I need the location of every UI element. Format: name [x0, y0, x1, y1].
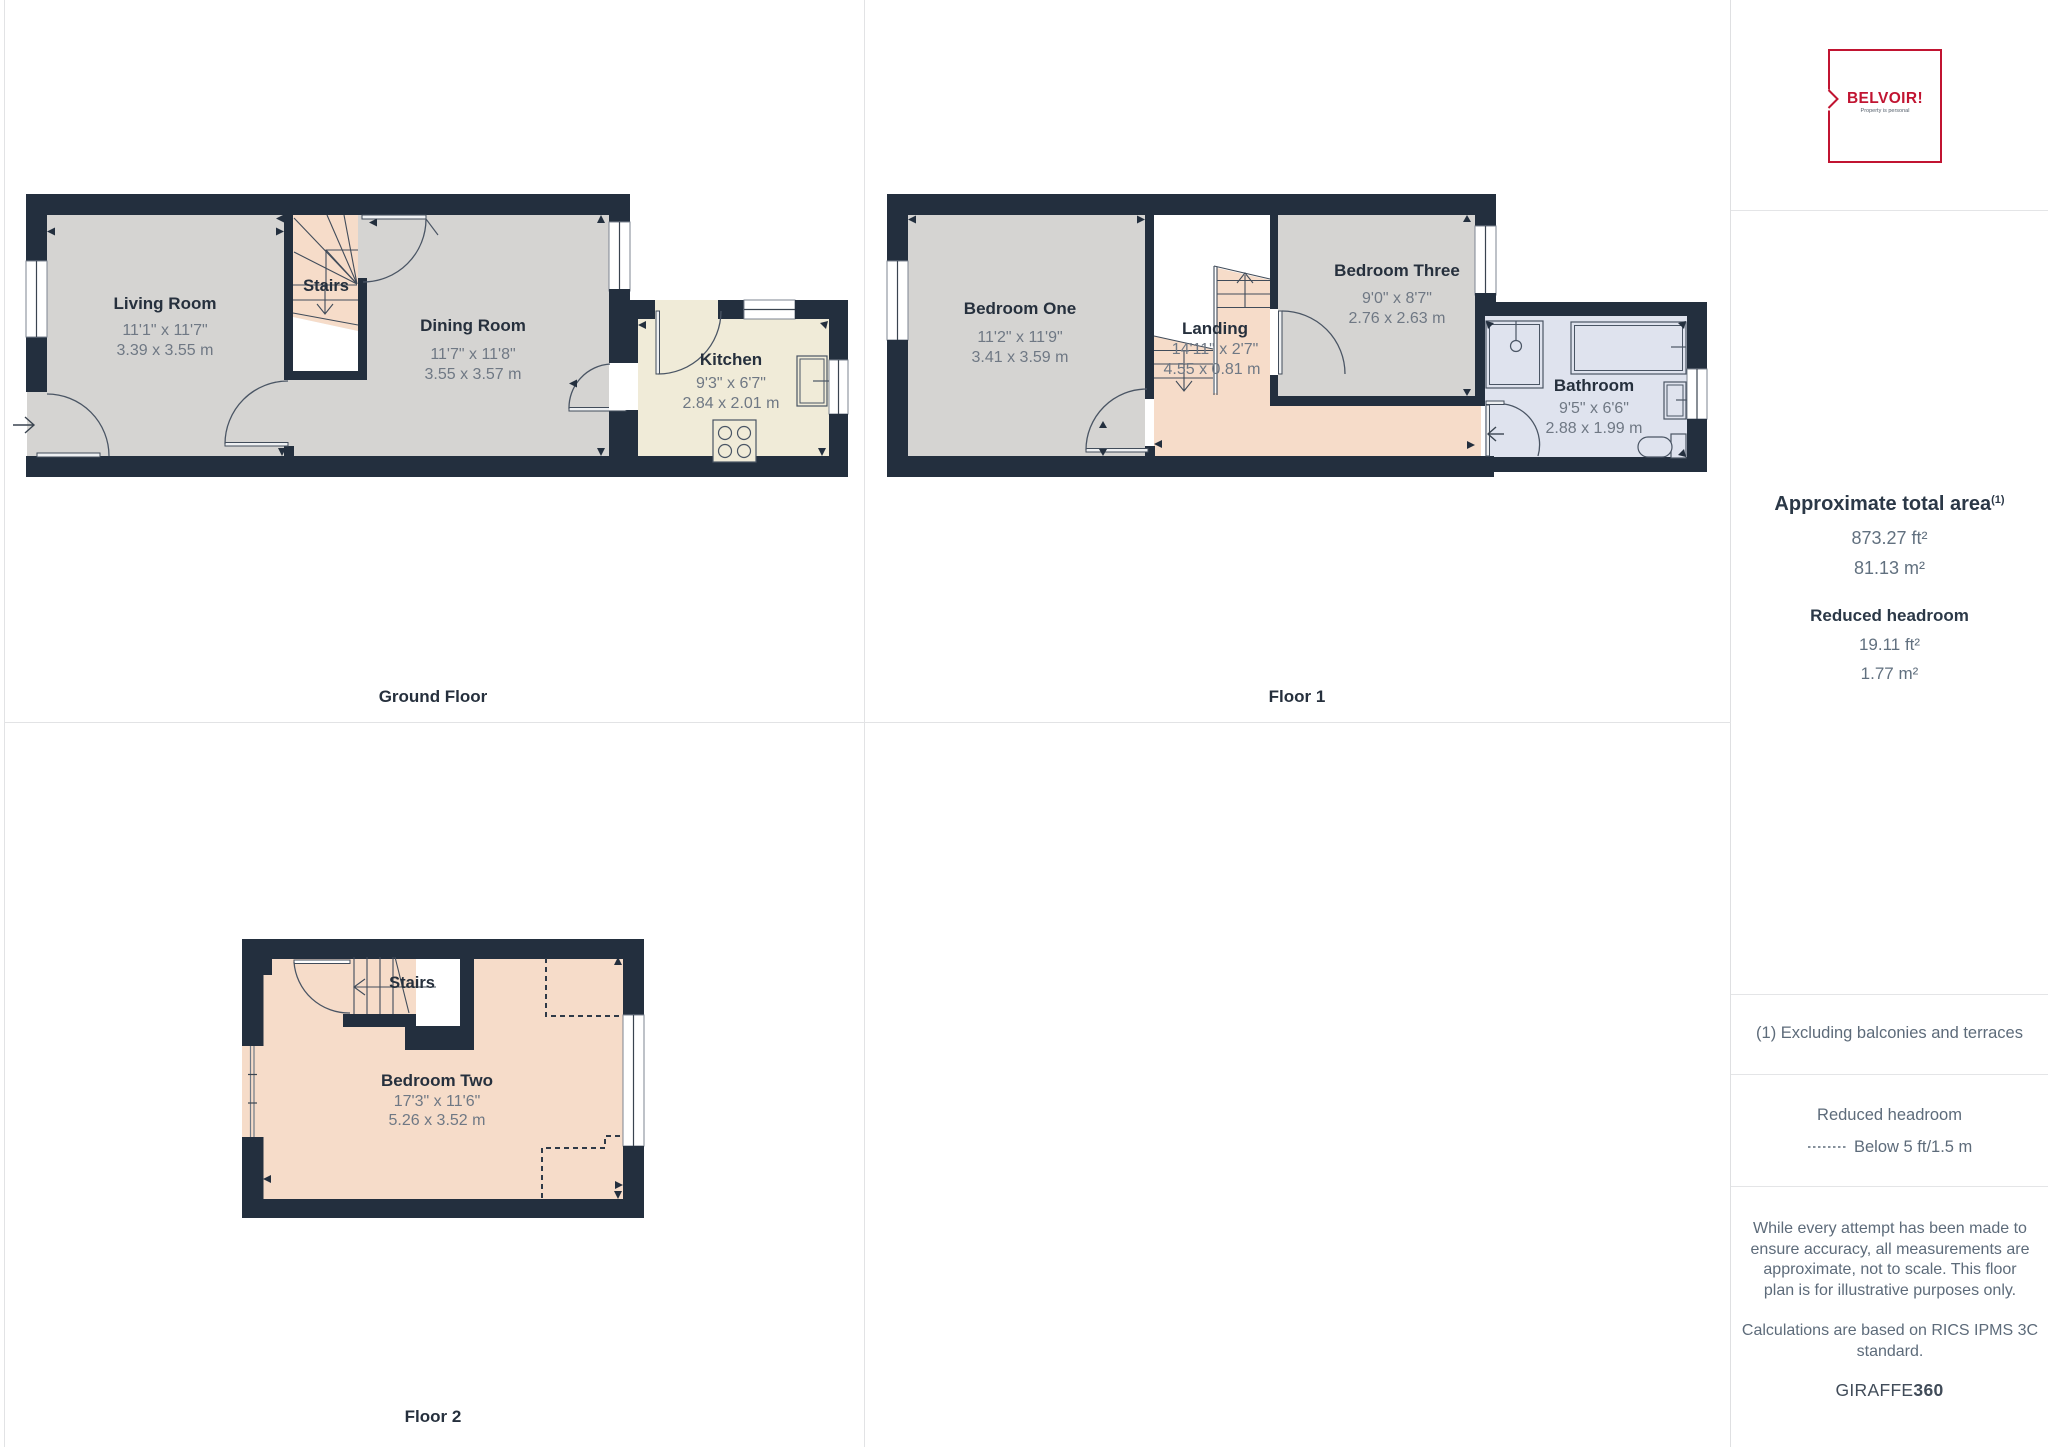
- svg-text:4.55 x 0.81 m: 4.55 x 0.81 m: [1164, 361, 1261, 378]
- svg-text:Living Room: Living Room: [114, 294, 217, 313]
- svg-text:Stairs: Stairs: [303, 277, 349, 295]
- svg-text:2.84 x 2.01 m: 2.84 x 2.01 m: [683, 395, 780, 412]
- svg-text:Kitchen: Kitchen: [700, 350, 762, 369]
- svg-text:Dining Room: Dining Room: [420, 316, 526, 335]
- svg-text:Bedroom Three: Bedroom Three: [1334, 261, 1460, 280]
- svg-text:11'2" x 11'9": 11'2" x 11'9": [977, 329, 1062, 346]
- svg-text:3.39 x 3.55 m: 3.39 x 3.55 m: [117, 342, 214, 359]
- svg-text:Stairs: Stairs: [389, 974, 435, 992]
- svg-text:Bathroom: Bathroom: [1554, 376, 1634, 395]
- svg-text:9'0" x 8'7": 9'0" x 8'7": [1362, 290, 1432, 307]
- svg-text:Landing: Landing: [1182, 319, 1248, 338]
- svg-text:11'1" x 11'7": 11'1" x 11'7": [122, 322, 207, 339]
- svg-text:9'3" x 6'7": 9'3" x 6'7": [696, 375, 766, 392]
- svg-text:3.55 x 3.57 m: 3.55 x 3.57 m: [425, 366, 522, 383]
- svg-text:2.88 x 1.99 m: 2.88 x 1.99 m: [1546, 420, 1643, 437]
- svg-text:2.76 x 2.63 m: 2.76 x 2.63 m: [1349, 310, 1446, 327]
- svg-text:3.41 x 3.59 m: 3.41 x 3.59 m: [972, 349, 1069, 366]
- svg-text:9'5" x 6'6": 9'5" x 6'6": [1559, 400, 1629, 417]
- svg-text:14'11" x 2'7": 14'11" x 2'7": [1172, 341, 1259, 358]
- svg-text:17'3" x 11'6": 17'3" x 11'6": [394, 1093, 481, 1110]
- svg-text:5.26 x 3.52 m: 5.26 x 3.52 m: [389, 1112, 486, 1129]
- svg-text:Bedroom One: Bedroom One: [964, 299, 1076, 318]
- svg-text:11'7" x 11'8": 11'7" x 11'8": [430, 346, 515, 363]
- svg-text:Bedroom Two: Bedroom Two: [381, 1071, 493, 1090]
